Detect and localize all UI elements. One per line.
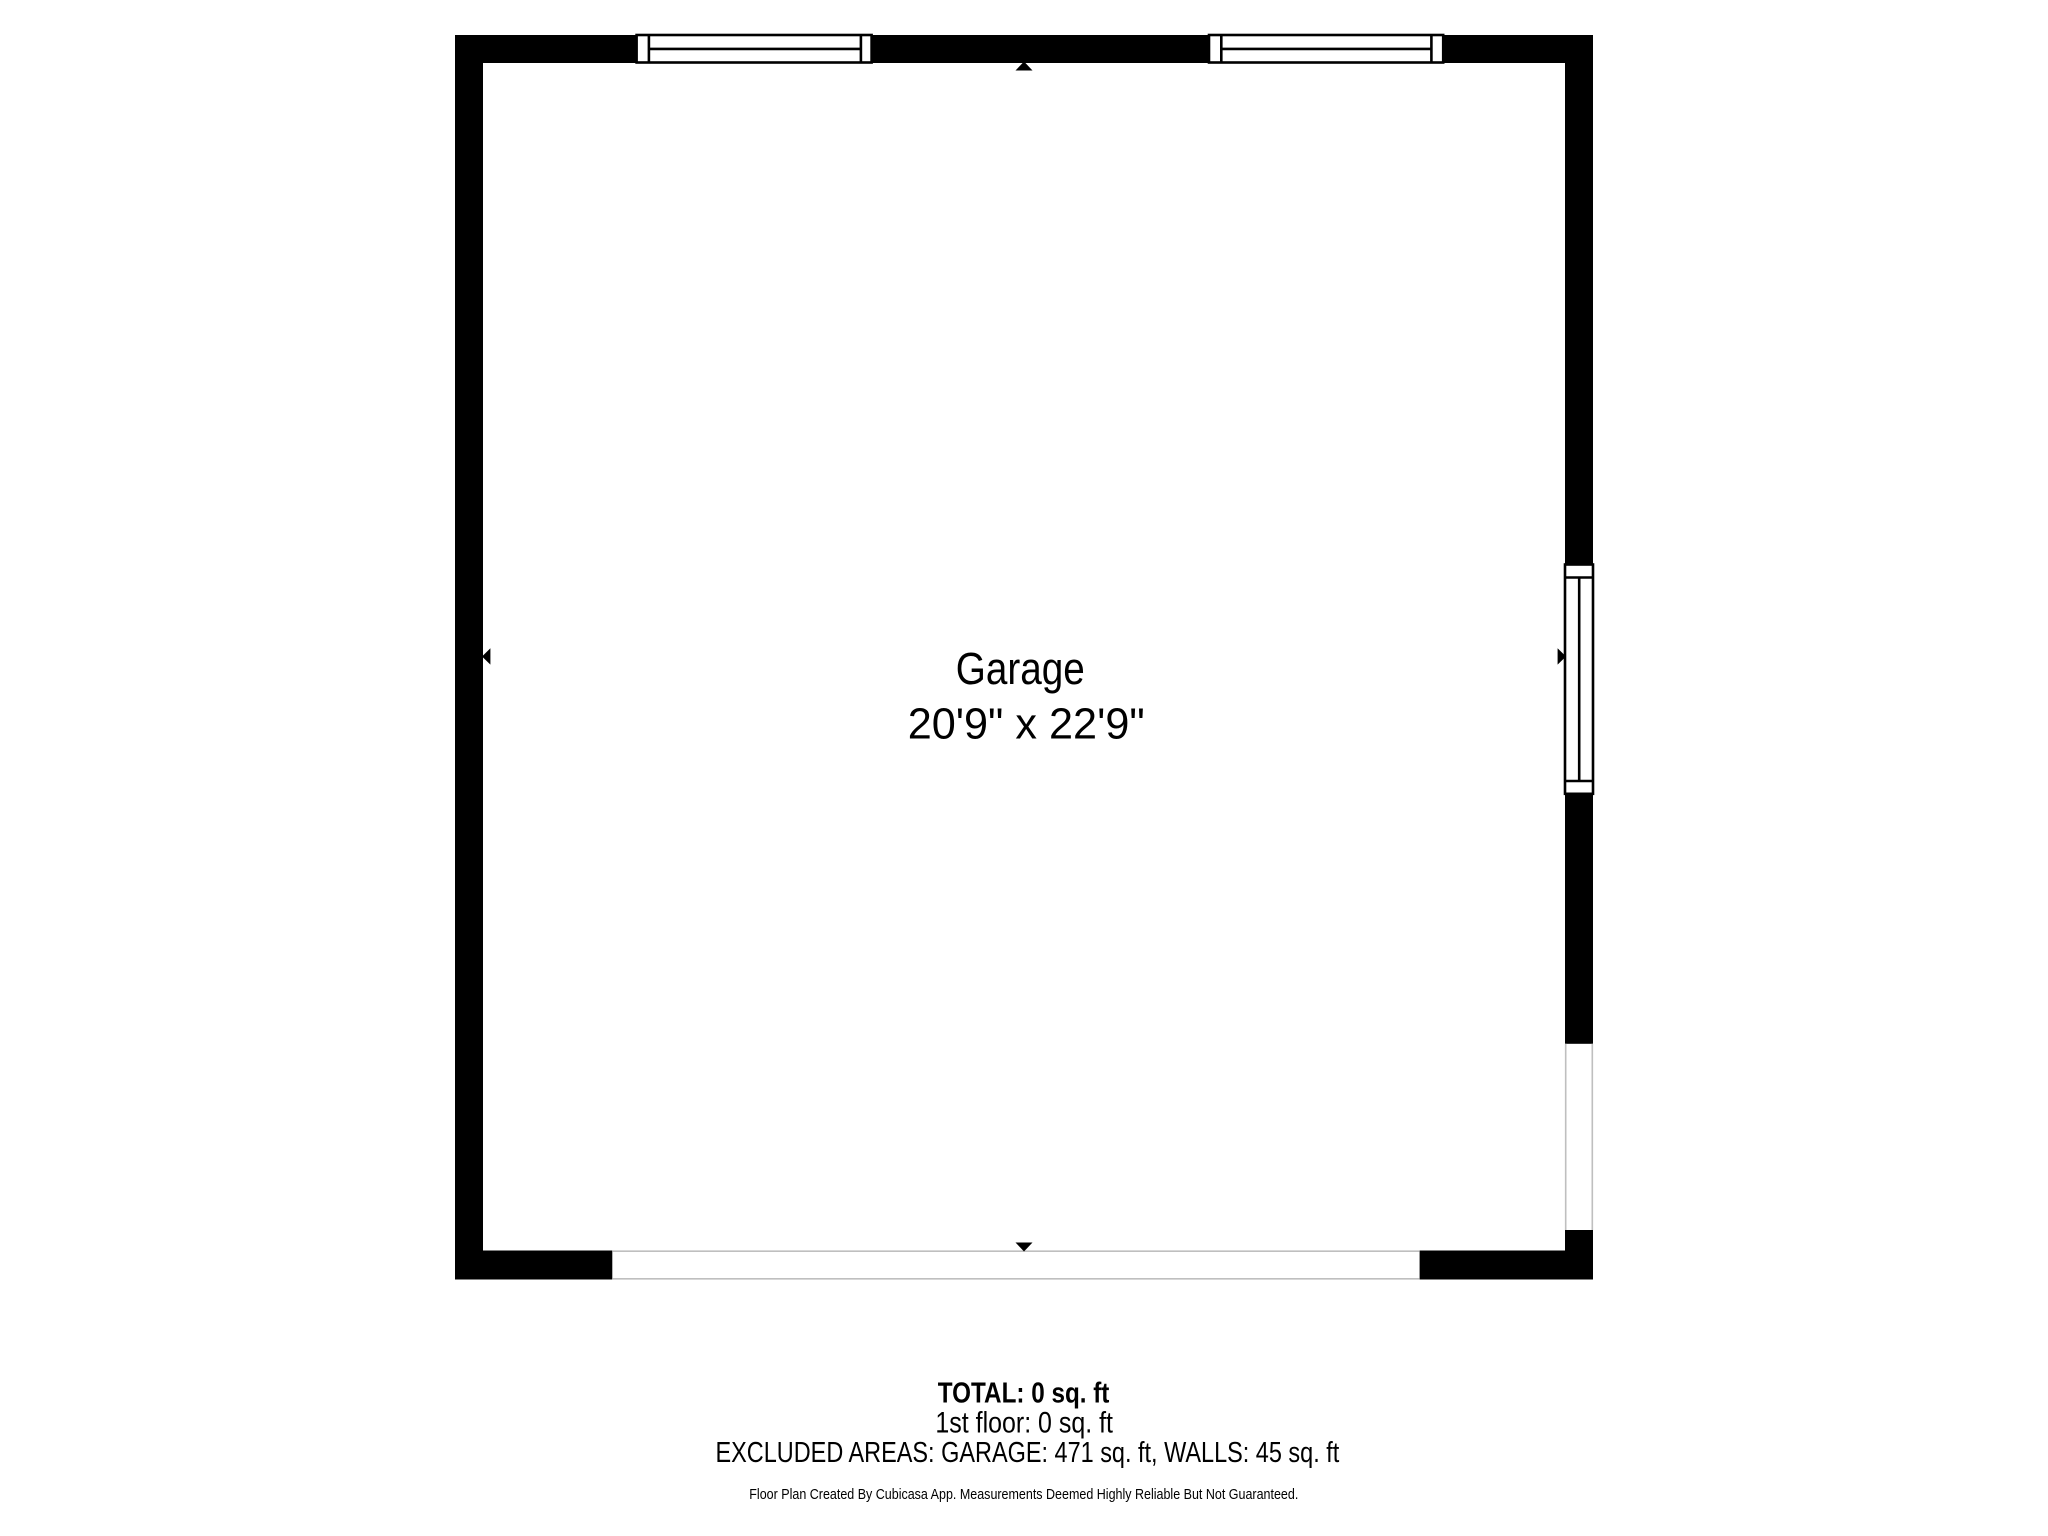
svg-text:1st floor: 0 sq. ft: 1st floor: 0 sq. ft [935,1406,1113,1439]
svg-text:Garage: Garage [956,643,1085,694]
svg-text:EXCLUDED AREAS: GARAGE: 471 sq: EXCLUDED AREAS: GARAGE: 471 sq. ft, WALL… [716,1437,1340,1469]
svg-text:Floor Plan Created By Cubicasa: Floor Plan Created By Cubicasa App. Meas… [749,1487,1298,1503]
svg-text:TOTAL: 0 sq. ft: TOTAL: 0 sq. ft [938,1378,1110,1410]
svg-text:20'9" x 22'9": 20'9" x 22'9" [908,700,1145,749]
